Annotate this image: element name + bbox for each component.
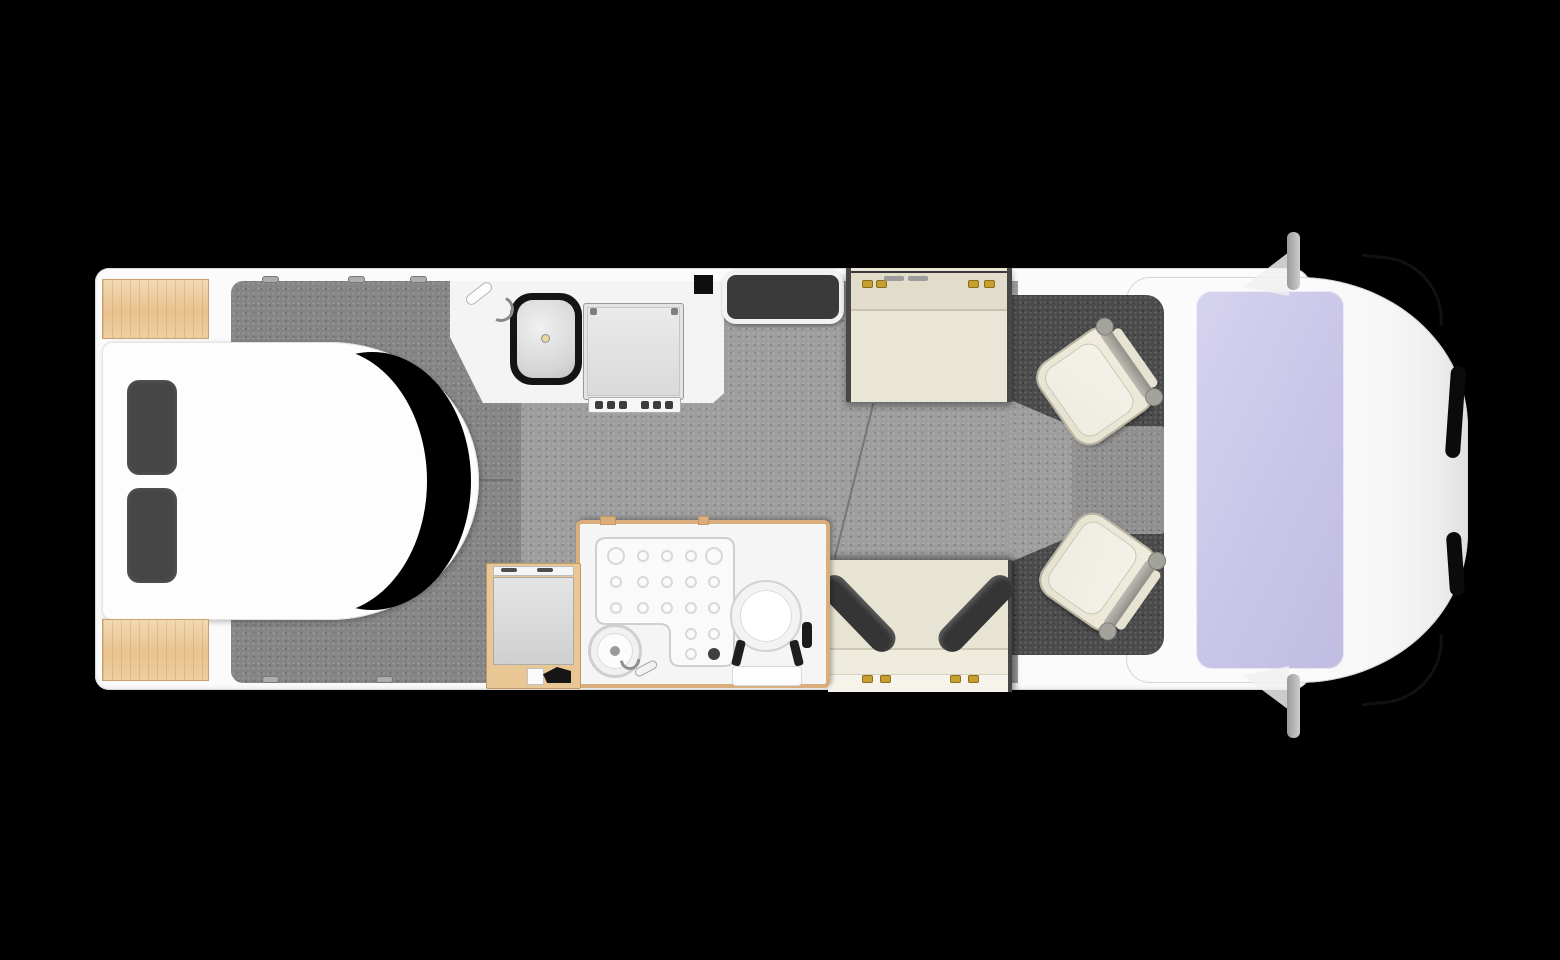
seatbelt-buckle-icon (876, 280, 887, 288)
grille-trim-icon (1355, 634, 1449, 707)
hob (583, 303, 684, 400)
wardrobe-tower (486, 563, 581, 689)
entrance-step-well (722, 270, 844, 324)
floorplan-canvas (0, 0, 1560, 960)
rear-wardrobe-top (102, 279, 209, 339)
window-latch-icon (262, 276, 279, 283)
window-latch-icon (348, 276, 365, 283)
window-latch-icon (410, 276, 427, 283)
seatbelt-buckle-icon (880, 675, 891, 683)
seatbelt-buckle-icon (968, 675, 979, 683)
wing-mirror-top (1287, 232, 1300, 290)
hob-control-panel (588, 397, 681, 413)
hob-knob-icon (607, 401, 615, 409)
hob-screw-icon (590, 308, 597, 315)
wing-mirror-bottom (1287, 674, 1300, 738)
hob-knob-icon (641, 401, 649, 409)
floor-seam-horizontal (479, 479, 513, 481)
pillow-right (127, 488, 177, 583)
bench-backrest (851, 271, 1007, 311)
bed-mattress (225, 348, 427, 614)
grille-trim-icon (1355, 254, 1449, 327)
rear-wardrobe-bottom (102, 619, 209, 681)
bench-front-band (828, 648, 1008, 674)
shelf-fitting (527, 668, 544, 685)
back-cushion-right (933, 570, 1019, 658)
washroom-door-post (600, 516, 616, 525)
toilet-cistern (732, 666, 802, 686)
washroom-door-post (698, 516, 709, 525)
shower-drain-icon (708, 648, 720, 660)
window-latch-icon (376, 676, 393, 683)
wall-detail (694, 275, 713, 294)
seatbelt-buckle-icon (862, 675, 873, 683)
windscreen (1196, 291, 1344, 669)
rear-facing-bench (828, 560, 1012, 692)
bench-base (828, 674, 1008, 692)
valve-fitting-icon (543, 667, 571, 683)
hob-screw-icon (671, 308, 678, 315)
basin-drain-icon (610, 646, 620, 656)
sink-drain-icon (541, 334, 550, 343)
hob-knob-icon (665, 401, 673, 409)
seatbelt-buckle-icon (968, 280, 979, 288)
washroom (576, 520, 830, 688)
seatbelt-buckle-icon (862, 280, 873, 288)
wardrobe-front-panel (493, 577, 574, 665)
window-latch-icon (262, 676, 279, 683)
seatbelt-buckle-icon (950, 675, 961, 683)
hob-knob-icon (619, 401, 627, 409)
handle-slot-icon (537, 568, 553, 572)
headrest-mount-icon (908, 276, 928, 281)
door-handle-icon (802, 622, 812, 648)
seatbelt-buckle-icon (984, 280, 995, 288)
pillow-left (127, 380, 177, 475)
hob-knob-icon (653, 401, 661, 409)
handle-slot-icon (501, 568, 517, 572)
hob-knob-icon (595, 401, 603, 409)
travel-bench-forward (846, 268, 1012, 402)
headrest-mount-icon (884, 276, 904, 281)
